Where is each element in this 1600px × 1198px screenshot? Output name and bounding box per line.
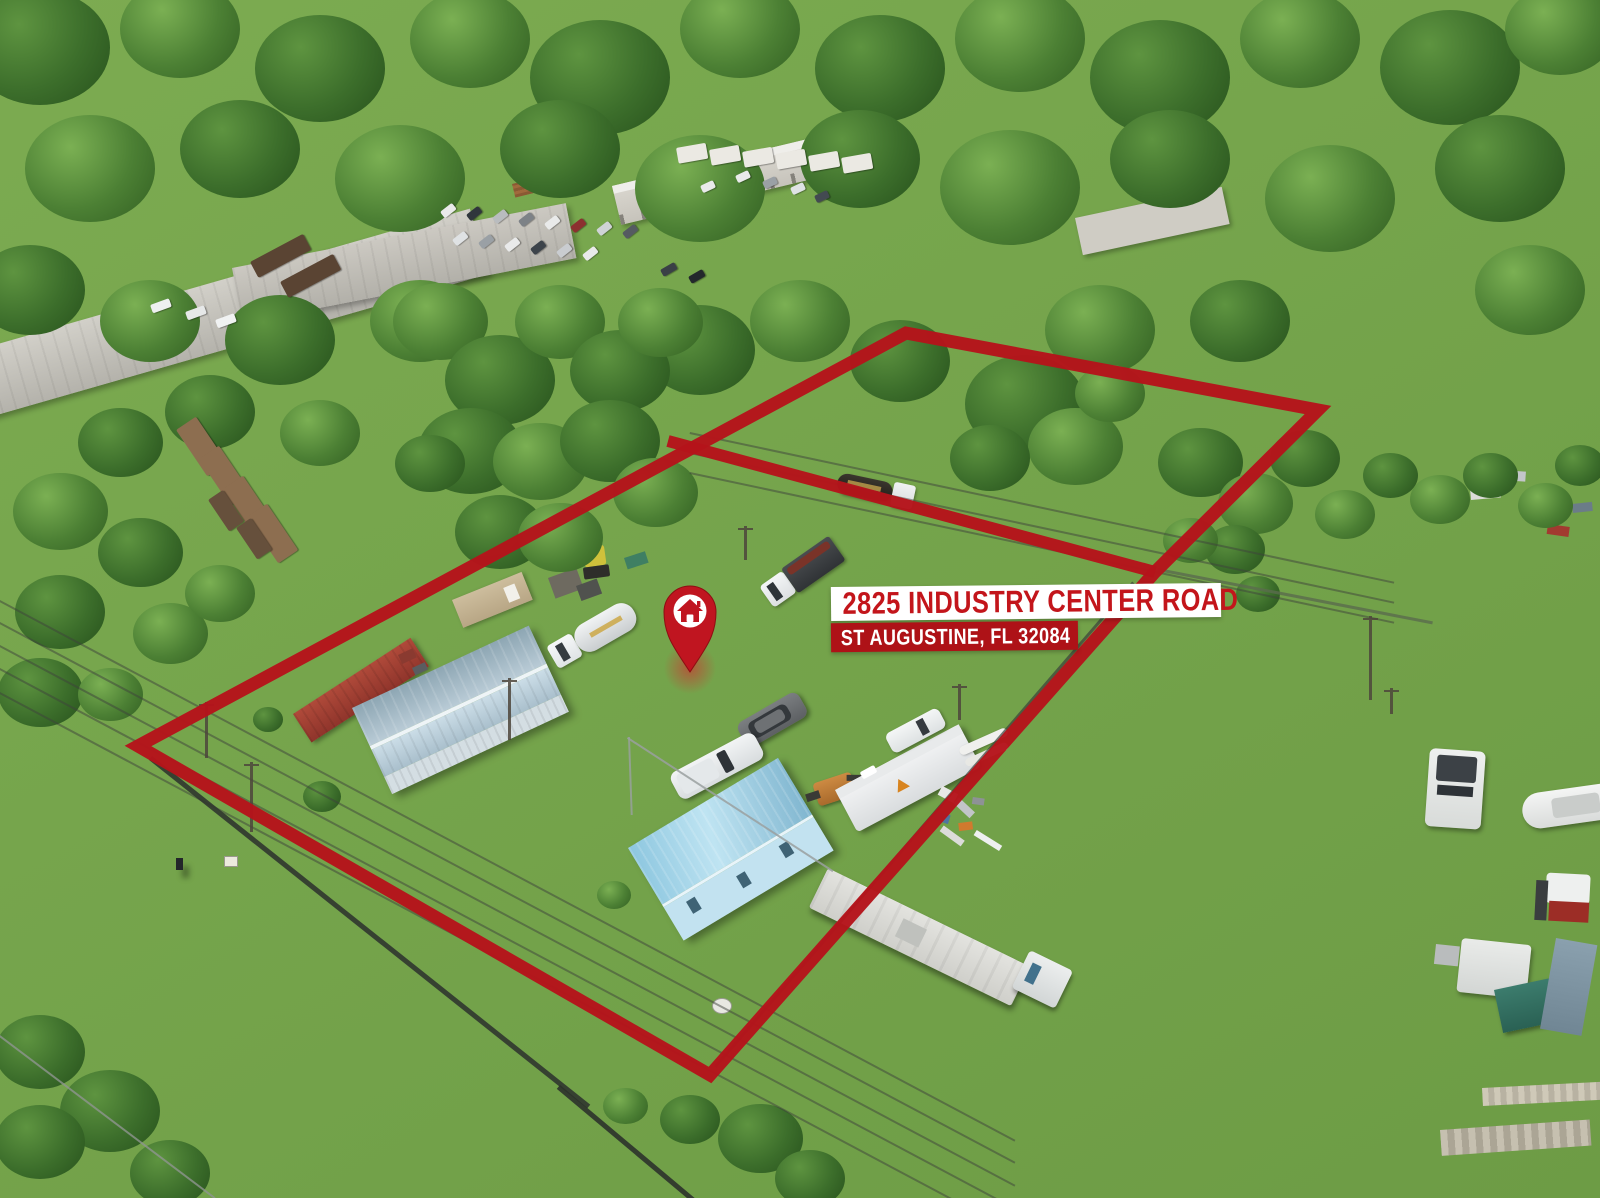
chain-link-fence <box>0 1035 216 1198</box>
chain-link-fence <box>714 582 1134 1068</box>
privacy-fence <box>149 756 590 1109</box>
chain-link-fence <box>628 737 633 815</box>
aerial-photo: 2825 INDUSTRY CENTER ROAD ST AUGUSTINE, … <box>0 0 1600 1198</box>
address-line-2: ST AUGUSTINE, FL 32084 <box>831 622 1071 651</box>
address-line-1: 2825 INDUSTRY CENTER ROAD <box>831 582 1239 622</box>
fence-layer <box>0 0 1600 1198</box>
address-banner: 2825 INDUSTRY CENTER ROAD <box>831 583 1221 621</box>
chain-link-fence <box>627 737 834 872</box>
address-banner-city: ST AUGUSTINE, FL 32084 <box>831 621 1078 653</box>
privacy-fence <box>557 1085 813 1198</box>
